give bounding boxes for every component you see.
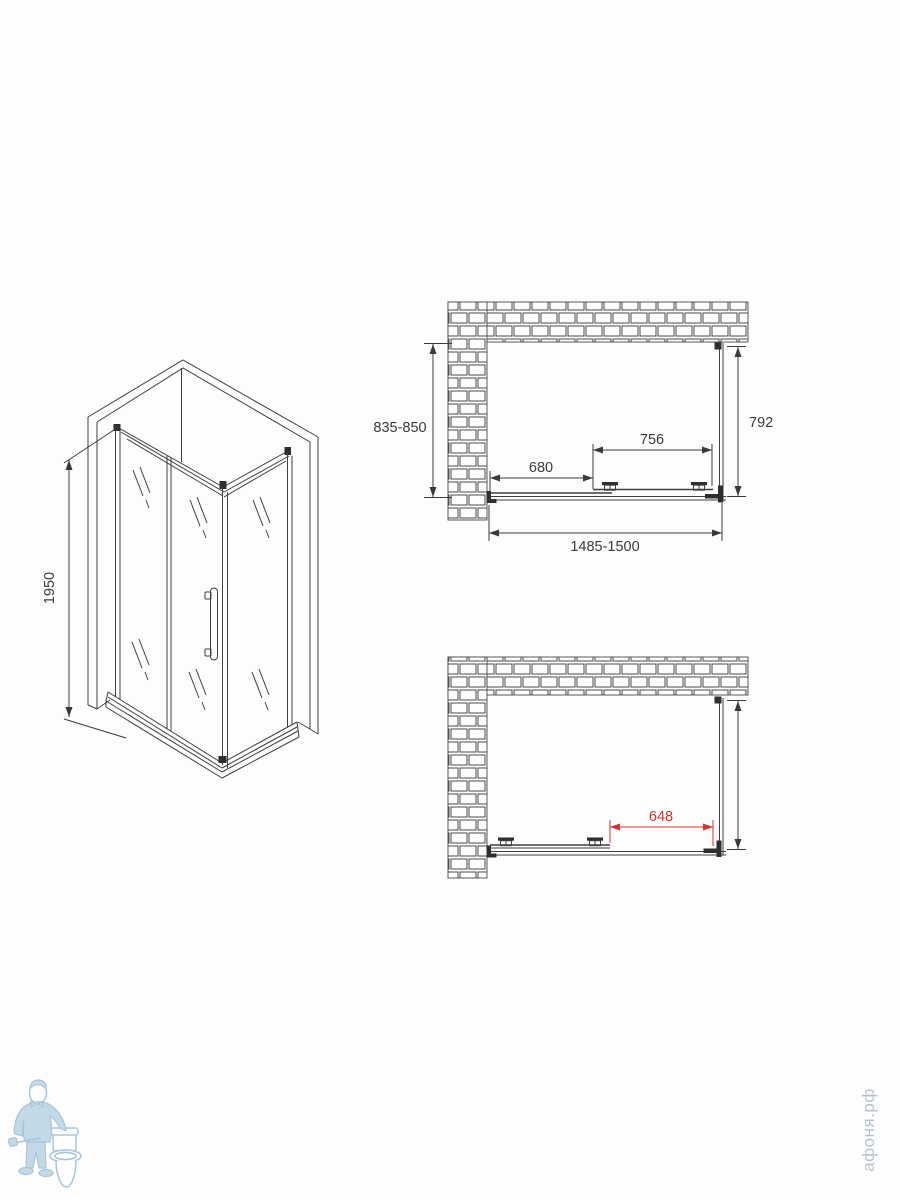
plumber-legs bbox=[26, 1142, 46, 1168]
door-track-open bbox=[487, 838, 727, 858]
roller bbox=[602, 482, 618, 490]
dimension-side-panel: 792 bbox=[727, 347, 773, 497]
dimension-total-width: 1485-1500 bbox=[489, 503, 722, 555]
toilet-pedestal bbox=[56, 1160, 76, 1187]
door-handle bbox=[205, 588, 218, 660]
dim-label-height: 1950 bbox=[42, 572, 58, 604]
dim-label-opening: 648 bbox=[649, 809, 673, 825]
wall-hatch-left bbox=[448, 302, 487, 520]
side-glass-panel bbox=[715, 697, 724, 856]
roller bbox=[587, 838, 603, 846]
wall-hatch-left bbox=[448, 657, 487, 878]
dimension-door: 756 bbox=[593, 432, 712, 489]
dim-label-fixed-panel: 680 bbox=[529, 460, 553, 476]
watermark-site-text: афоня.рф bbox=[859, 1088, 878, 1172]
dimension-depth: 835-850 bbox=[373, 344, 452, 498]
dimension-height: 1950 bbox=[42, 426, 126, 738]
isometric-view: 1950 bbox=[42, 360, 318, 778]
plan-view-closed: 835-850 792 756 680 bbox=[373, 302, 773, 555]
dim-label-total-width: 1485-1500 bbox=[570, 539, 639, 555]
wall-hatch-top bbox=[448, 657, 748, 695]
plumber-with-toilet-logo bbox=[8, 1080, 81, 1187]
roller bbox=[498, 838, 514, 846]
dim-label-depth: 835-850 bbox=[373, 420, 426, 436]
wall-corner bbox=[88, 360, 318, 734]
blueprint-canvas: 1950 bbox=[0, 0, 900, 1200]
pipe-wrench-head bbox=[8, 1137, 17, 1146]
dimension-fixed-panel: 680 bbox=[490, 460, 593, 493]
glass-shine-marks bbox=[132, 467, 270, 710]
dimension-opening: 648 bbox=[610, 809, 713, 846]
enclosure-top-frame bbox=[114, 424, 292, 497]
side-glass-panel bbox=[715, 343, 724, 503]
dim-label-side-panel: 792 bbox=[749, 415, 773, 431]
door-track-closed bbox=[487, 482, 727, 503]
plan-view-open: 648 bbox=[448, 657, 748, 878]
roller bbox=[691, 482, 707, 490]
enclosure-panels bbox=[116, 426, 293, 768]
plumber-shoe bbox=[19, 1168, 33, 1175]
enclosure-base bbox=[106, 692, 299, 778]
dim-label-door: 756 bbox=[640, 432, 664, 448]
wall-hatch-top bbox=[448, 302, 748, 342]
dimension-side-unlabeled bbox=[727, 701, 746, 850]
plumber-shoe bbox=[39, 1170, 53, 1177]
